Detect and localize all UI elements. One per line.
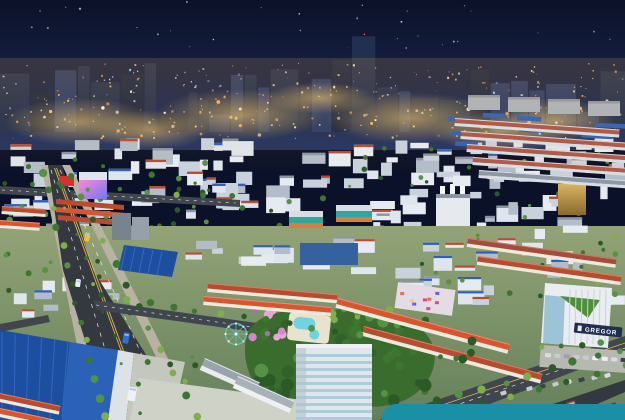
warehouse-roof-east <box>62 342 118 420</box>
scene-svg: GREGOR <box>0 0 625 420</box>
sign-logo-mark <box>577 325 582 331</box>
blue-flat-roof-building <box>300 243 358 265</box>
base <box>436 194 470 226</box>
teal-band <box>336 211 372 217</box>
office-glass-face <box>543 295 565 345</box>
teal-orange-building <box>289 211 323 228</box>
watermark-banner <box>382 404 625 420</box>
white-tower-building <box>436 184 470 226</box>
aerial-city-render: GREGOR <box>0 0 625 420</box>
roof <box>289 211 323 217</box>
teal-orange-building <box>336 205 372 222</box>
roof-line <box>436 194 470 198</box>
glass-building-south <box>296 344 372 420</box>
office-block <box>112 213 131 240</box>
orange-band <box>289 223 323 228</box>
office-blocks <box>112 213 149 240</box>
orange-band <box>336 217 372 222</box>
gold-lit-building <box>558 184 586 215</box>
teal-band <box>289 217 323 223</box>
ferris-wheel <box>224 322 247 345</box>
roof <box>336 205 372 211</box>
office-block <box>132 217 149 240</box>
